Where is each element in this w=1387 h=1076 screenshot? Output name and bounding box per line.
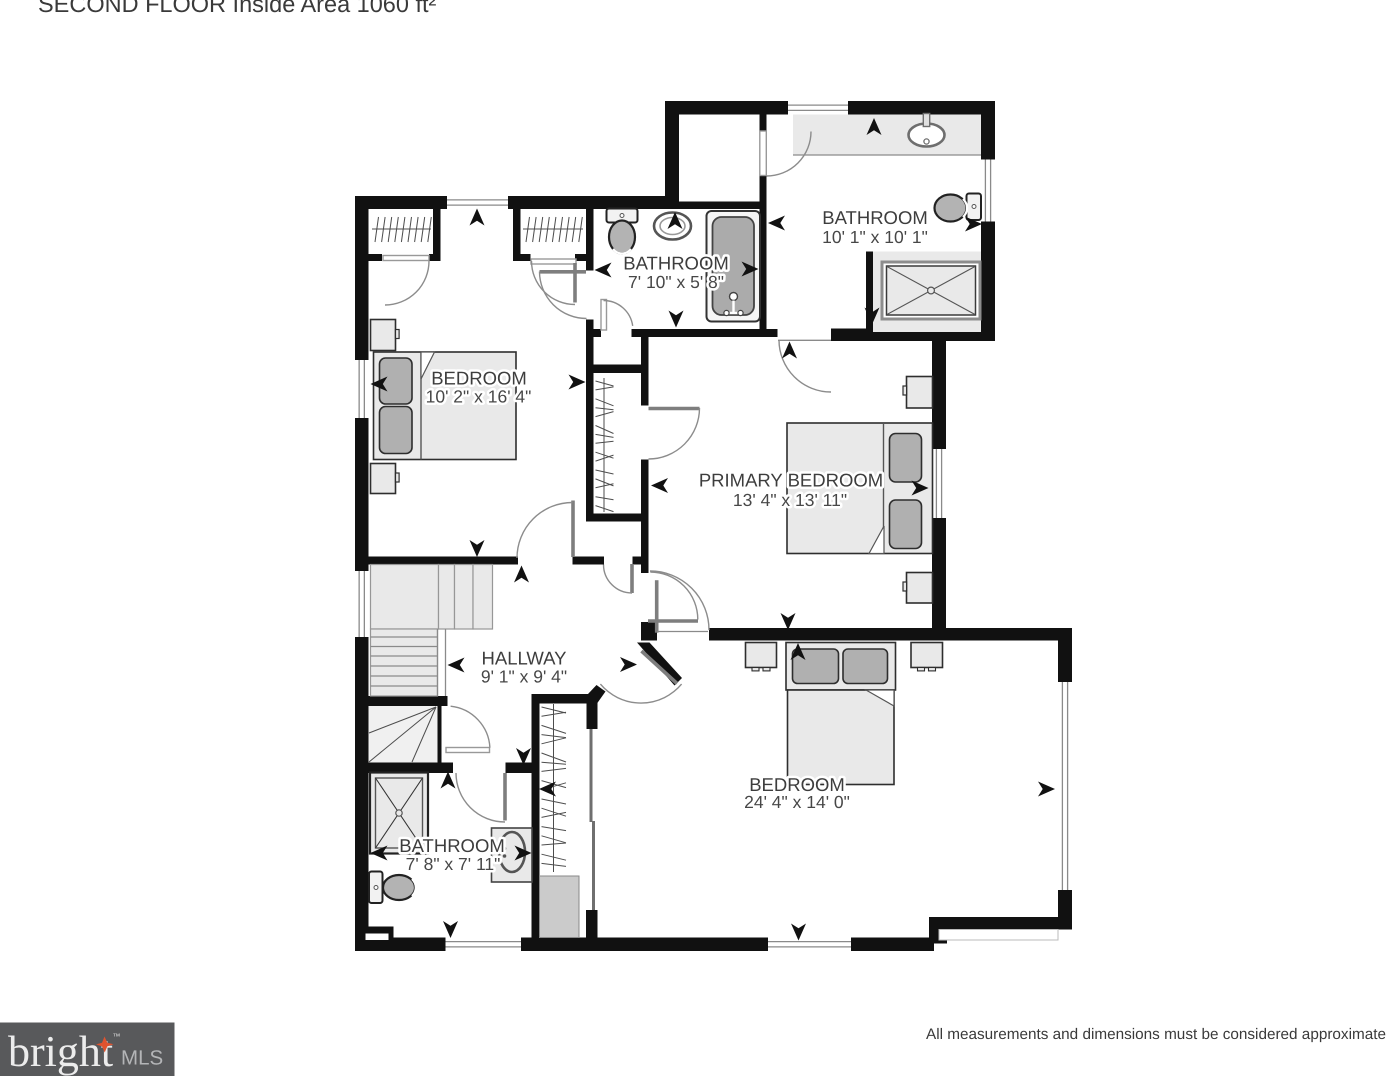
svg-text:7' 10" x 5' 8": 7' 10" x 5' 8" [628, 272, 724, 292]
svg-text:SECOND FLOOR Inside Area 1060: SECOND FLOOR Inside Area 1060 ft² [38, 0, 437, 17]
svg-text:BATHROOM: BATHROOM [623, 253, 729, 274]
svg-text:PRIMARY BEDROOM: PRIMARY BEDROOM [699, 470, 883, 491]
svg-text:10' 1" x 10' 1": 10' 1" x 10' 1" [822, 227, 928, 247]
svg-text:bright: bright [8, 1027, 113, 1076]
svg-text:MLS: MLS [121, 1047, 163, 1070]
svg-text:7' 8" x 7' 11": 7' 8" x 7' 11" [406, 854, 501, 874]
svg-text:9' 1" x 9' 4": 9' 1" x 9' 4" [481, 667, 567, 687]
svg-text:13' 4" x 13' 11": 13' 4" x 13' 11" [733, 490, 847, 510]
svg-text:BEDROOM: BEDROOM [431, 368, 527, 389]
svg-text:10' 2" x 16' 4": 10' 2" x 16' 4" [426, 387, 532, 407]
svg-text:BATHROOM: BATHROOM [822, 207, 928, 228]
svg-text:All measurements and dimension: All measurements and dimensions must be … [926, 1026, 1387, 1043]
svg-text:HALLWAY: HALLWAY [482, 648, 567, 669]
svg-text:24' 4" x 14' 0": 24' 4" x 14' 0" [744, 792, 850, 812]
svg-text:™: ™ [113, 1032, 121, 1041]
svg-text:BATHROOM: BATHROOM [399, 835, 505, 856]
